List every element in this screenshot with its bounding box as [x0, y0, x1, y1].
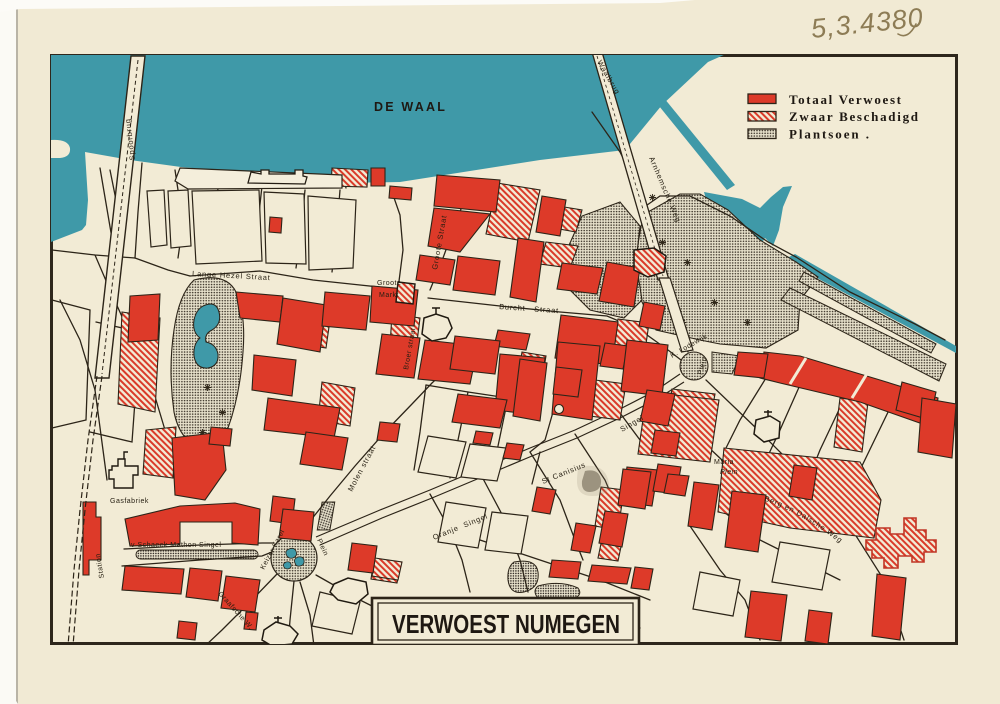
- svg-text:Groote: Groote: [377, 280, 401, 287]
- svg-text:Maria: Maria: [714, 459, 734, 466]
- svg-text:v Schaeck Mathon Singel: v Schaeck Mathon Singel: [131, 542, 222, 549]
- svg-text:Plein: Plein: [720, 469, 738, 476]
- svg-text:Gasfabriek: Gasfabriek: [110, 498, 149, 505]
- svg-text:DE WAAL: DE WAAL: [374, 100, 447, 114]
- svg-text:Markt: Markt: [379, 292, 399, 299]
- svg-text:Zwaar Beschadigd: Zwaar Beschadigd: [789, 109, 919, 124]
- svg-text:Plantsoen .: Plantsoen .: [789, 127, 869, 142]
- svg-text:VERWOEST NUMEGEN: VERWOEST NUMEGEN: [392, 609, 620, 639]
- svg-text:Totaal Verwoest: Totaal Verwoest: [789, 92, 902, 107]
